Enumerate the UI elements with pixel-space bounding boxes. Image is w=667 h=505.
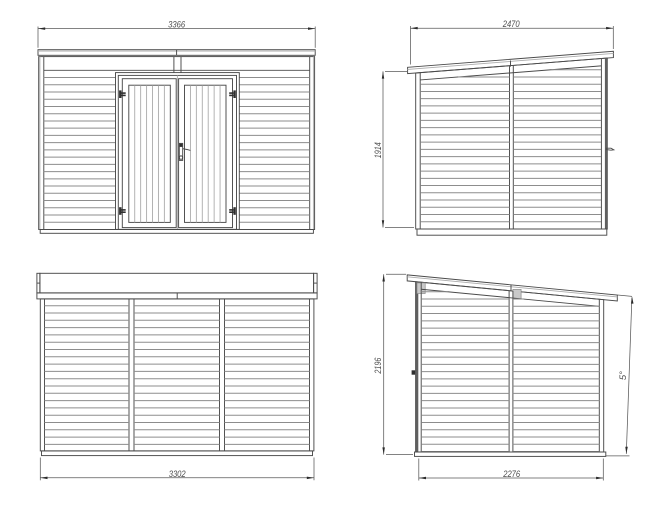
svg-text:1914: 1914 [373,142,384,158]
svg-text:3302: 3302 [169,469,187,480]
svg-text:5°: 5° [618,371,629,380]
svg-text:3366: 3366 [168,20,186,31]
svg-text:2196: 2196 [373,357,384,374]
svg-text:2470: 2470 [502,19,520,30]
svg-text:2276: 2276 [502,469,520,480]
